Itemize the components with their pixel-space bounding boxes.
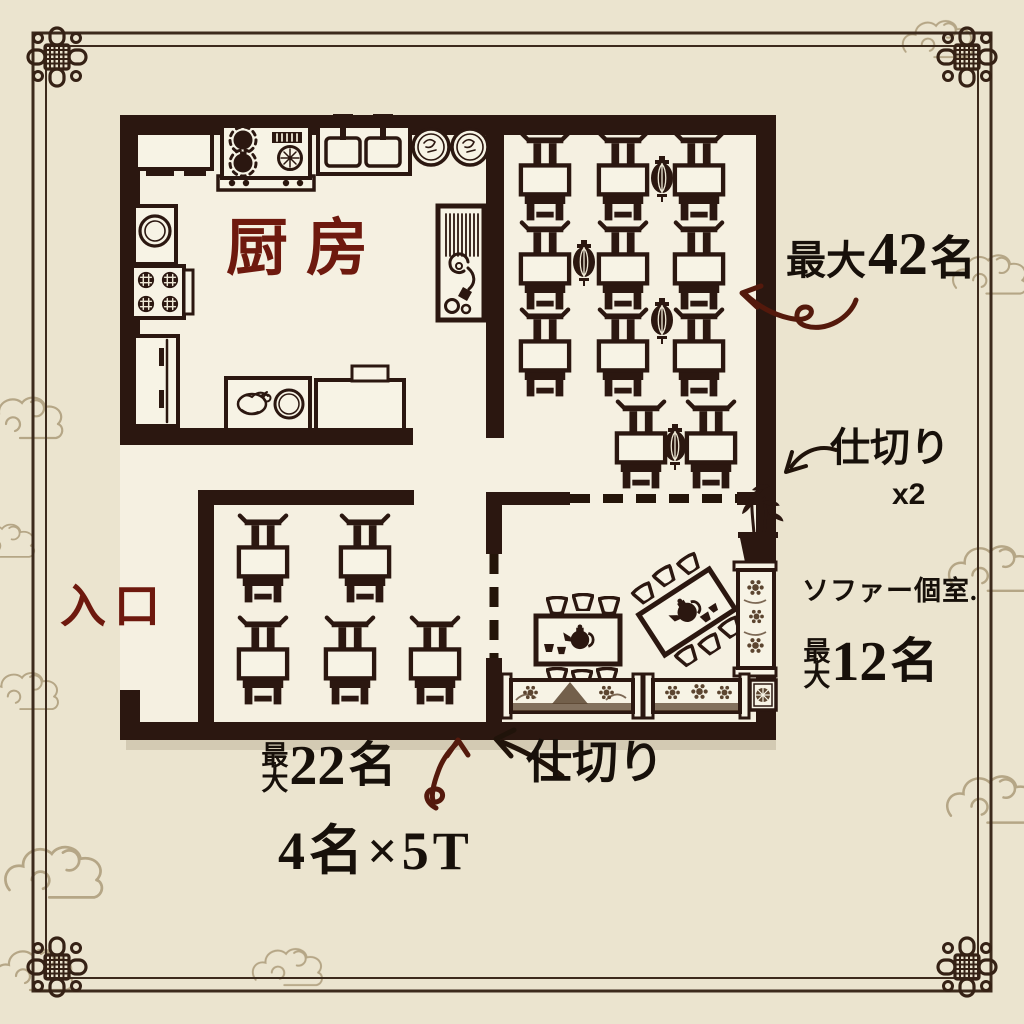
- tea-table: [536, 594, 620, 686]
- capacity-unit: 名: [890, 638, 938, 686]
- kitchen-label: 厨房: [226, 218, 386, 280]
- floor-plan-drawing: [0, 0, 1024, 1024]
- partition-right-count: x2: [892, 480, 925, 510]
- wall: [198, 490, 214, 740]
- partition-right-label: 仕切り: [830, 428, 950, 468]
- wall: [120, 115, 776, 135]
- cloud-icon: [947, 776, 1024, 822]
- capacity-unit: 名: [348, 742, 396, 790]
- cloud-icon: [0, 673, 58, 709]
- kitchen-counter-top-left: [136, 133, 212, 176]
- sofa-bench: [502, 674, 642, 718]
- sofa-room-label: ソファー個室.: [802, 578, 978, 605]
- max-label: 最大: [800, 637, 828, 687]
- capacity-number: 42: [868, 224, 928, 284]
- arrow-to-partition-right: [786, 448, 836, 472]
- kitchen-prep-table: [226, 378, 310, 430]
- cloud-icon: [5, 847, 101, 897]
- cloud-icon: [0, 398, 62, 438]
- wall: [486, 658, 502, 740]
- max-label: 最大: [786, 241, 866, 281]
- corner-knot-icon: [938, 938, 996, 996]
- capacity-number: 22: [289, 738, 345, 794]
- entrance-label: 入口: [60, 584, 168, 630]
- wall: [120, 722, 776, 740]
- sofa-bench: [644, 674, 749, 718]
- table-breakdown-label: 4名×5T: [278, 824, 473, 878]
- kitchen-cabinet: [134, 336, 178, 426]
- flower-stand: [750, 680, 776, 710]
- wall: [486, 115, 504, 438]
- kitchen-range-4burner: [132, 266, 193, 318]
- cloud-icon: [0, 525, 34, 557]
- cloud-icon: [253, 949, 322, 985]
- capacity-number: 12: [831, 634, 887, 690]
- capacity-unit: 名: [930, 236, 976, 282]
- wall: [486, 492, 570, 505]
- main-dining-capacity: 最大42名: [786, 224, 976, 284]
- kitchen-stove: [218, 126, 314, 190]
- wall: [198, 490, 414, 505]
- kitchen-water-heater: [438, 206, 484, 320]
- sofa-room-capacity: 最大12名: [800, 634, 938, 690]
- restaurant-floor-plan: 厨房 入口 最大42名 仕切り x2 ソファー個室. 最大12名 最大22名 仕…: [0, 0, 1024, 1024]
- corner-knot-icon: [28, 938, 86, 996]
- kitchen-washer: [134, 206, 176, 264]
- sofa-vertical: [734, 562, 776, 676]
- arrow-to-lower-dining: [427, 740, 468, 808]
- max-label: 最大: [258, 741, 286, 791]
- corner-knot-icon: [28, 28, 86, 86]
- lower-dining-capacity: 最大22名: [258, 738, 396, 794]
- partition-bottom-label: 仕切り: [526, 740, 664, 786]
